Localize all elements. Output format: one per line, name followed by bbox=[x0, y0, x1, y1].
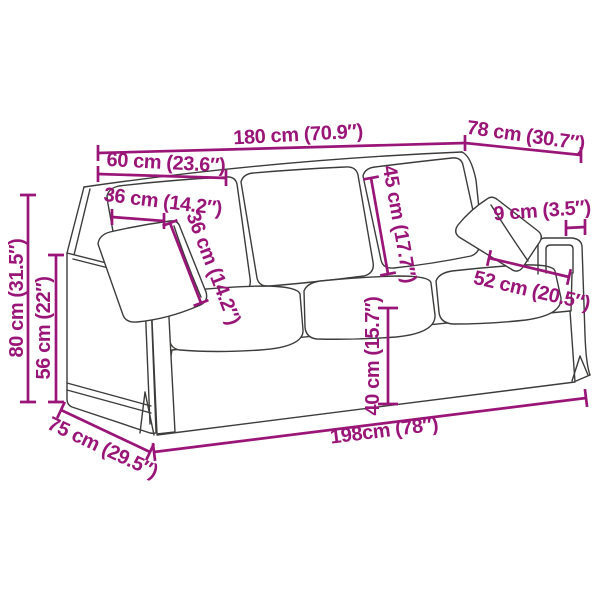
back-left-edge-inner bbox=[74, 189, 90, 255]
sofa-dimension-diagram: 180 cm (70.9″) 78 cm (30.7″) 60 cm (23.6… bbox=[0, 0, 600, 600]
dim-line-armrest-width bbox=[566, 227, 585, 228]
dim-total-depth: 78 cm (30.7″) bbox=[465, 117, 586, 163]
back-cushion-middle bbox=[241, 167, 373, 286]
right-arm-skirt-join bbox=[576, 375, 590, 381]
dim-total-height: 80 cm (31.5″) bbox=[6, 195, 36, 402]
diagram-canvas: 180 cm (70.9″) 78 cm (30.7″) 60 cm (23.6… bbox=[0, 0, 600, 600]
dim-label-base-length: 198cm (78″) bbox=[329, 413, 439, 448]
dim-armrest-height: 56 cm (22″) bbox=[33, 255, 64, 402]
dim-label-armrest-height: 56 cm (22″) bbox=[33, 276, 55, 379]
dim-label-armrest-width: 9 cm (3.5″) bbox=[493, 197, 592, 226]
dim-label-section-width: 60 cm (23.6″) bbox=[106, 149, 226, 177]
back-left-edge bbox=[67, 187, 84, 253]
dim-label-total-height: 80 cm (31.5″) bbox=[6, 239, 28, 358]
dim-label-seat-height: 40 cm (15.7″) bbox=[362, 297, 384, 416]
